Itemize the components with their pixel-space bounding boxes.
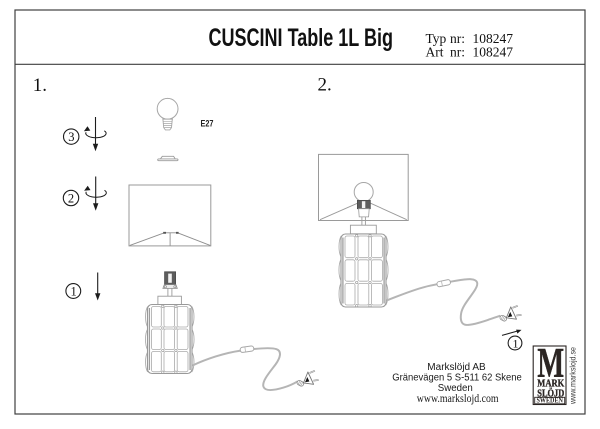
- svg-text:108247: 108247: [473, 45, 514, 60]
- svg-text:1: 1: [71, 285, 77, 299]
- svg-text:2: 2: [68, 192, 74, 206]
- svg-text:Art: Art: [426, 45, 444, 60]
- svg-text:3: 3: [68, 130, 74, 144]
- svg-text:Gränevägen 5 S-511 62 Skene: Gränevägen 5 S-511 62 Skene: [392, 372, 522, 383]
- svg-text:nr:: nr:: [450, 45, 465, 60]
- svg-text:www.markslojd.com: www.markslojd.com: [417, 392, 499, 405]
- svg-text:www.markslojd.se: www.markslojd.se: [568, 347, 578, 405]
- svg-text:E27: E27: [201, 118, 214, 129]
- svg-text:2.: 2.: [318, 75, 332, 96]
- svg-text:1: 1: [513, 336, 519, 350]
- svg-text:1.: 1.: [33, 75, 47, 96]
- svg-text:Markslöjd AB: Markslöjd AB: [427, 362, 486, 373]
- svg-text:CUSCINI Table 1L Big: CUSCINI Table 1L Big: [209, 24, 394, 52]
- svg-text:SWEDEN: SWEDEN: [537, 397, 563, 405]
